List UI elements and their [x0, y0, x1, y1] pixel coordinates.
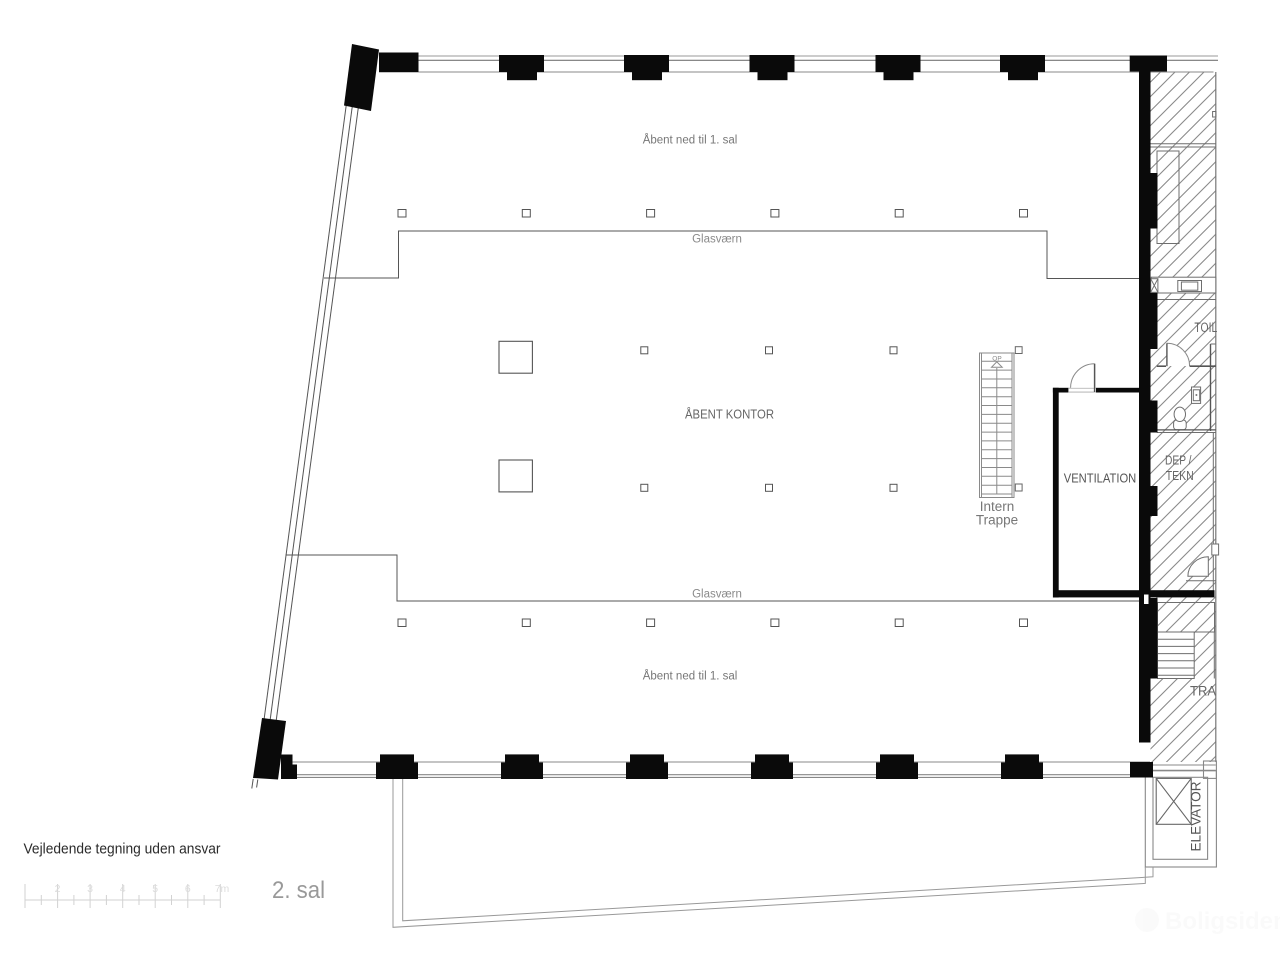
svg-text:5: 5 — [152, 883, 158, 895]
svg-text:2: 2 — [55, 883, 61, 895]
svg-text:Boligsiden: Boligsiden — [1165, 908, 1280, 935]
svg-text:DEP /: DEP / — [1165, 452, 1192, 467]
svg-text:VENTILATION: VENTILATION — [1064, 472, 1137, 486]
svg-text:Trappe: Trappe — [976, 513, 1018, 528]
svg-text:6: 6 — [185, 883, 191, 895]
svg-text:TEKN: TEKN — [1166, 468, 1194, 483]
svg-text:3: 3 — [87, 883, 93, 895]
svg-text:4: 4 — [120, 883, 126, 895]
svg-text:2. sal: 2. sal — [272, 877, 325, 904]
svg-text:ÅBENT KONTOR: ÅBENT KONTOR — [685, 406, 774, 421]
svg-text:Åbent ned til 1. sal: Åbent ned til 1. sal — [643, 134, 738, 147]
svg-text:Glasværn: Glasværn — [692, 234, 742, 246]
svg-text:TRA: TRA — [1190, 684, 1216, 699]
svg-text:Vejledende tegning uden ansvar: Vejledende tegning uden ansvar — [24, 842, 221, 858]
svg-text:ELEVATOR: ELEVATOR — [1189, 781, 1204, 851]
svg-text:7m: 7m — [215, 883, 230, 895]
svg-text:Glasværn: Glasværn — [692, 589, 742, 601]
svg-text:Åbent ned til 1. sal: Åbent ned til 1. sal — [643, 670, 738, 683]
svg-text:TOIL: TOIL — [1194, 320, 1217, 335]
svg-text:OP: OP — [992, 356, 1001, 363]
